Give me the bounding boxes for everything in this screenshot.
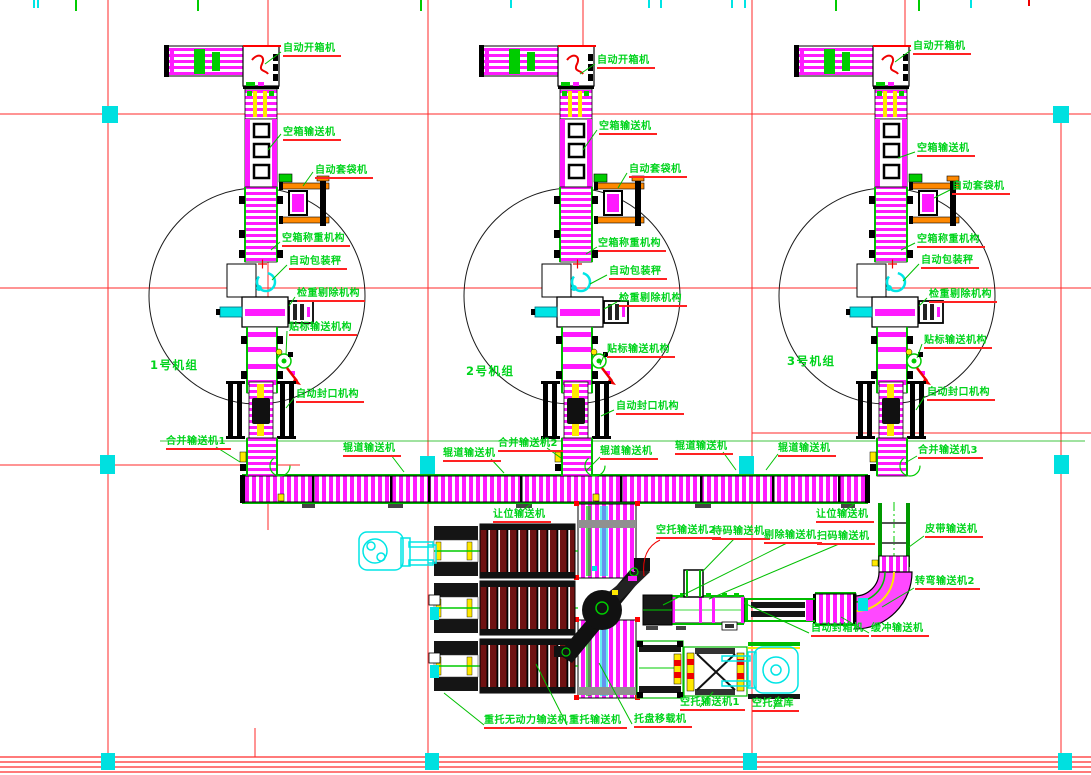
label-packing-scale-u3: 自动包装秤 — [921, 256, 979, 269]
label-unit-group-3: 3号机组 — [787, 356, 836, 366]
label-empty-carton-conveyor-u1: 空箱输送机 — [283, 128, 341, 141]
label-roller-conveyor-c: 辊道输送机 — [600, 447, 658, 460]
label-reject-conveyor: 剔除输送机 — [764, 531, 822, 544]
label-checkweigher-u2: 检重剔除机构 — [619, 294, 687, 307]
cad-layout-drawing: 自动开箱机 空箱输送机 自动套袋机 空箱称重机构 自动包装秤 检重剔除机构 贴标… — [0, 0, 1091, 775]
label-carton-weighing-u3: 空箱称重机构 — [917, 235, 985, 248]
label-empty-pallet-store: 空托盘库 — [752, 699, 799, 712]
label-bagging-machine-u2: 自动套袋机 — [629, 165, 687, 178]
label-belt-conveyor: 皮带输送机 — [925, 525, 983, 538]
label-labeling-conveyor-u2: 贴标输送机构 — [607, 345, 675, 358]
label-merge-conveyor-2: 合并输送机2 — [498, 439, 563, 452]
label-unit-group-2: 2号机组 — [466, 366, 515, 376]
label-empty-carton-conveyor-u2: 空箱输送机 — [599, 122, 657, 135]
label-yield-conveyor-1: 让位输送机 — [493, 510, 551, 523]
label-bagging-machine-u1: 自动套袋机 — [315, 166, 373, 179]
label-yield-conveyor-2: 让位输送机 — [816, 510, 874, 523]
top-edge-ticks — [33, 0, 1030, 11]
label-labeling-conveyor-u1: 贴标输送机构 — [289, 323, 357, 336]
label-curve-conveyor-2: 转弯输送机2 — [915, 577, 980, 590]
label-empty-carton-conveyor-u3: 空箱输送机 — [917, 144, 975, 157]
pallet-truck-icon — [359, 532, 436, 570]
label-carton-opener-u1: 自动开箱机 — [283, 44, 341, 57]
label-carton-opener-u2: 自动开箱机 — [597, 56, 655, 69]
label-checkweigher-u3: 检重剔除机构 — [929, 290, 997, 303]
label-empty-pallet-conveyor-1: 空托输送机1 — [680, 698, 745, 711]
label-sealing-mechanism-u2: 自动封口机构 — [616, 402, 684, 415]
label-sealing-mechanism-u1: 自动封口机构 — [296, 390, 364, 403]
label-buffer-conveyor: 缓冲输送机 — [871, 624, 929, 637]
label-labeling-conveyor-u3: 贴标输送机构 — [924, 336, 992, 349]
label-pallet-transfer-machine: 托盘移载机 — [634, 715, 692, 728]
label-merge-conveyor-1: 合并输送机1 — [166, 437, 231, 450]
label-sealing-mechanism-u3: 自动封口机构 — [927, 388, 995, 401]
label-auto-case-sealer: 自动封箱机 — [811, 624, 869, 637]
label-carton-weighing-u1: 空箱称重机构 — [282, 234, 350, 247]
main-roller-conveyor — [240, 474, 870, 508]
label-packing-scale-u2: 自动包装秤 — [609, 267, 667, 280]
label-scan-conveyor: 扫码输送机 — [817, 532, 875, 545]
label-roller-conveyor-d: 辊道输送机 — [675, 442, 733, 455]
label-carton-weighing-u2: 空箱称重机构 — [598, 239, 666, 252]
label-bagging-machine-u3: 自动套袋机 — [952, 182, 1010, 195]
label-unit-group-1: 1号机组 — [150, 360, 199, 370]
label-roller-conveyor-e: 辊道输送机 — [778, 444, 836, 457]
label-heavy-pallet-conveyor: 重托输送机 — [569, 716, 627, 729]
label-merge-conveyor-3: 合并输送机3 — [918, 446, 983, 459]
label-packing-scale-u1: 自动包装秤 — [289, 257, 347, 270]
label-carton-opener-u3: 自动开箱机 — [913, 42, 971, 55]
label-roller-conveyor-b: 辊道输送机 — [443, 449, 501, 462]
label-checkweigher-u1: 检重剔除机构 — [297, 289, 365, 302]
label-roller-conveyor-a: 辊道输送机 — [343, 444, 401, 457]
label-waiting-conveyor: 待码输送机 — [712, 527, 770, 540]
label-heavy-pallet-unpowered-conveyor: 重托无动力输送机 — [484, 716, 573, 729]
